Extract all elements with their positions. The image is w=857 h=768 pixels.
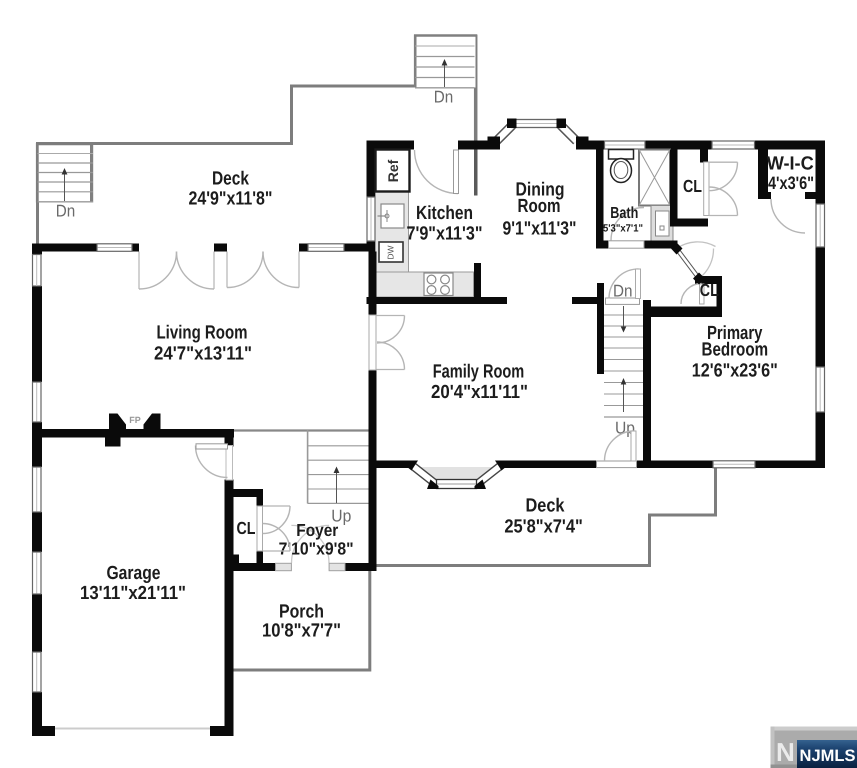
svg-text:Foyer: Foyer — [296, 520, 338, 540]
svg-text:Garage: Garage — [107, 563, 161, 584]
svg-text:Bedroom: Bedroom — [702, 340, 769, 361]
svg-text:Bath: Bath — [610, 205, 638, 222]
svg-text:N: N — [776, 737, 795, 767]
svg-text:CL: CL — [683, 176, 702, 196]
svg-text:Dn: Dn — [56, 202, 76, 221]
svg-text:Living Room: Living Room — [157, 322, 248, 343]
svg-text:Porch: Porch — [279, 601, 324, 622]
svg-text:Room: Room — [518, 196, 561, 217]
svg-text:13'11"x21'11": 13'11"x21'11" — [80, 583, 186, 604]
svg-text:CL: CL — [237, 518, 256, 538]
svg-text:Deck: Deck — [526, 495, 565, 516]
svg-text:20'4"x11'11": 20'4"x11'11" — [431, 382, 528, 403]
svg-text:Ref: Ref — [385, 159, 401, 182]
svg-text:W-I-C: W-I-C — [767, 154, 814, 175]
svg-text:DW: DW — [385, 245, 395, 259]
svg-text:9'1"x11'3": 9'1"x11'3" — [503, 219, 577, 240]
svg-text:5'3"x7'1": 5'3"x7'1" — [603, 223, 643, 235]
svg-text:NJMLS: NJMLS — [800, 747, 856, 765]
svg-text:Dn: Dn — [613, 282, 633, 301]
svg-text:Deck: Deck — [212, 168, 249, 189]
svg-text:10'8"x7'7": 10'8"x7'7" — [262, 620, 341, 641]
svg-text:24'9"x11'8": 24'9"x11'8" — [189, 189, 273, 210]
svg-text:12'6"x23'6": 12'6"x23'6" — [692, 360, 778, 381]
svg-text:7'9"x11'3": 7'9"x11'3" — [407, 224, 483, 245]
svg-text:24'7"x13'11": 24'7"x13'11" — [154, 344, 252, 365]
svg-text:Dn: Dn — [434, 88, 454, 107]
svg-text:Family Room: Family Room — [433, 361, 525, 382]
svg-text:Kitchen: Kitchen — [416, 203, 473, 224]
svg-text:CL: CL — [700, 280, 719, 300]
svg-text:FP: FP — [129, 415, 141, 425]
svg-text:4'x3'6": 4'x3'6" — [768, 173, 814, 193]
svg-text:25'8"x7'4": 25'8"x7'4" — [504, 516, 583, 537]
